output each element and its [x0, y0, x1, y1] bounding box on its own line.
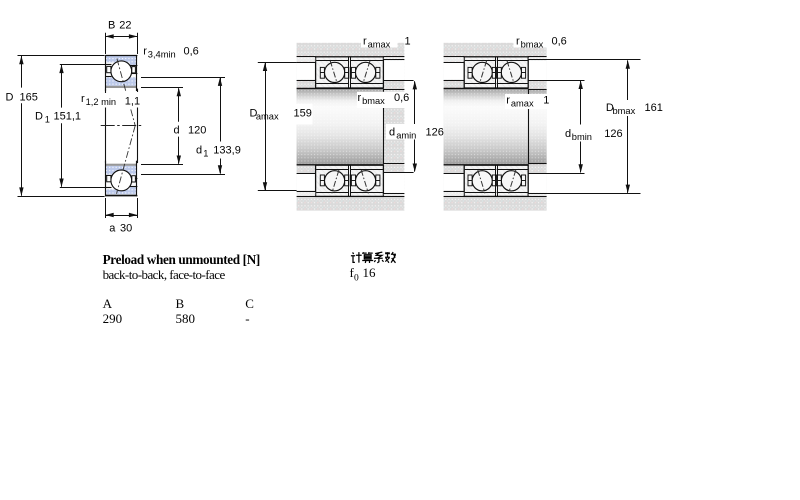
- svg-text:290: 290: [103, 311, 123, 326]
- svg-text:r: r: [363, 36, 367, 48]
- svg-text:D: D: [6, 91, 14, 103]
- svg-text:r: r: [143, 45, 147, 57]
- svg-text:1: 1: [45, 115, 50, 125]
- svg-text:0,6: 0,6: [184, 45, 199, 57]
- svg-text:r: r: [358, 92, 362, 104]
- svg-text:r: r: [516, 36, 520, 48]
- svg-text:1,2 min: 1,2 min: [86, 97, 117, 107]
- svg-text:amax: amax: [368, 40, 391, 50]
- svg-text:r: r: [81, 93, 85, 105]
- svg-text:bmax: bmax: [613, 106, 636, 116]
- svg-text:1: 1: [543, 94, 549, 106]
- svg-text:580: 580: [176, 311, 196, 326]
- svg-text:0,6: 0,6: [552, 36, 567, 48]
- svg-text:133,9: 133,9: [213, 145, 241, 157]
- svg-text:165: 165: [20, 91, 38, 103]
- svg-text:151,1: 151,1: [54, 111, 82, 123]
- svg-text:Preload when unmounted [N]: Preload when unmounted [N]: [103, 252, 260, 267]
- svg-text:159: 159: [294, 108, 312, 120]
- svg-text:amax: amax: [256, 112, 279, 122]
- svg-text:bmax: bmax: [362, 96, 385, 106]
- svg-text:126: 126: [604, 128, 622, 140]
- svg-text:1: 1: [405, 36, 411, 48]
- svg-text:d: d: [389, 126, 395, 138]
- svg-text:0,6: 0,6: [394, 92, 409, 104]
- svg-text:B: B: [108, 19, 115, 31]
- svg-text:3,4min: 3,4min: [148, 49, 176, 59]
- svg-text:-: -: [245, 311, 249, 326]
- svg-text:1: 1: [203, 149, 208, 159]
- svg-text:30: 30: [120, 223, 132, 235]
- svg-text:bmax: bmax: [521, 40, 544, 50]
- svg-text:a: a: [109, 223, 116, 235]
- svg-text:r: r: [506, 94, 510, 106]
- svg-text:amax: amax: [511, 98, 534, 108]
- svg-text:120: 120: [188, 124, 206, 136]
- svg-text:126: 126: [426, 126, 444, 138]
- svg-text:1,1: 1,1: [125, 95, 140, 107]
- svg-text:bmin: bmin: [572, 132, 592, 142]
- svg-text:d: d: [196, 145, 202, 157]
- svg-text:C: C: [245, 296, 254, 311]
- svg-text:A: A: [103, 296, 113, 311]
- svg-text:D: D: [35, 111, 43, 123]
- svg-text:16: 16: [363, 265, 377, 280]
- svg-text:161: 161: [645, 102, 663, 114]
- svg-text:d: d: [174, 124, 180, 136]
- svg-text:22: 22: [119, 19, 131, 31]
- svg-text:0: 0: [354, 273, 359, 283]
- svg-text:back-to-back, face-to-face: back-to-back, face-to-face: [103, 267, 226, 282]
- svg-text:B: B: [176, 296, 185, 311]
- svg-text:d: d: [565, 128, 571, 140]
- svg-text:amin: amin: [396, 130, 416, 140]
